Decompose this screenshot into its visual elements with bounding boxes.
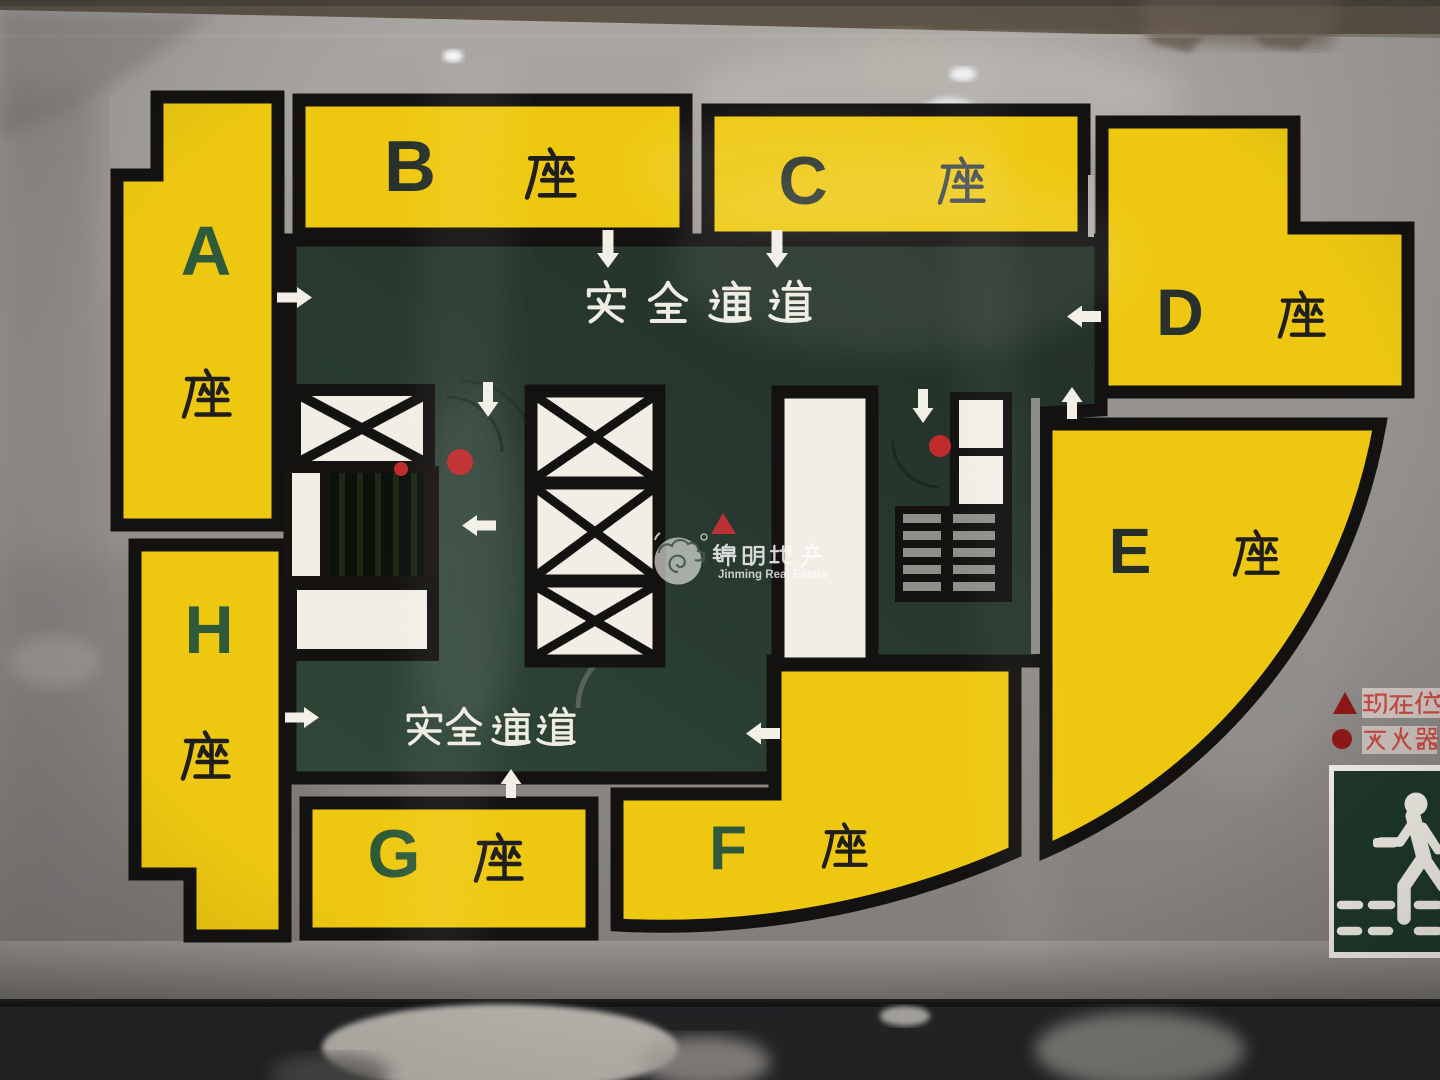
svg-text:F: F [709,814,747,883]
svg-text:D: D [1156,275,1204,349]
svg-text:Jinming Real Estate: Jinming Real Estate [718,569,827,581]
svg-text:H: H [184,592,233,668]
svg-text:E: E [1109,515,1152,587]
svg-text:A: A [181,212,232,290]
